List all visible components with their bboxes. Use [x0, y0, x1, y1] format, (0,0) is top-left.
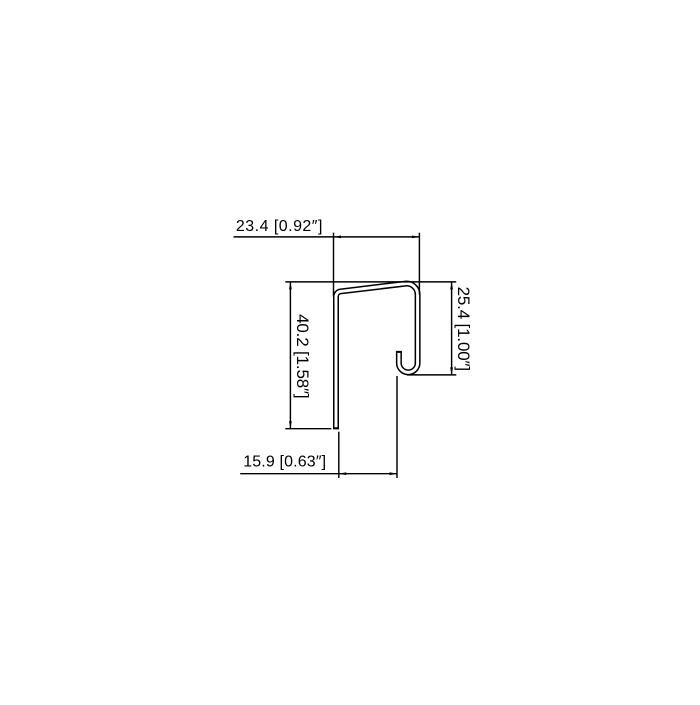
svg-text:40.2 [1.58″]: 40.2 [1.58″] [293, 314, 312, 399]
svg-text:25.4 [1.00″]: 25.4 [1.00″] [454, 287, 473, 372]
svg-text:23.4 [0.92″]: 23.4 [0.92″] [236, 218, 323, 235]
svg-text:15.9 [0.63″]: 15.9 [0.63″] [243, 453, 326, 470]
